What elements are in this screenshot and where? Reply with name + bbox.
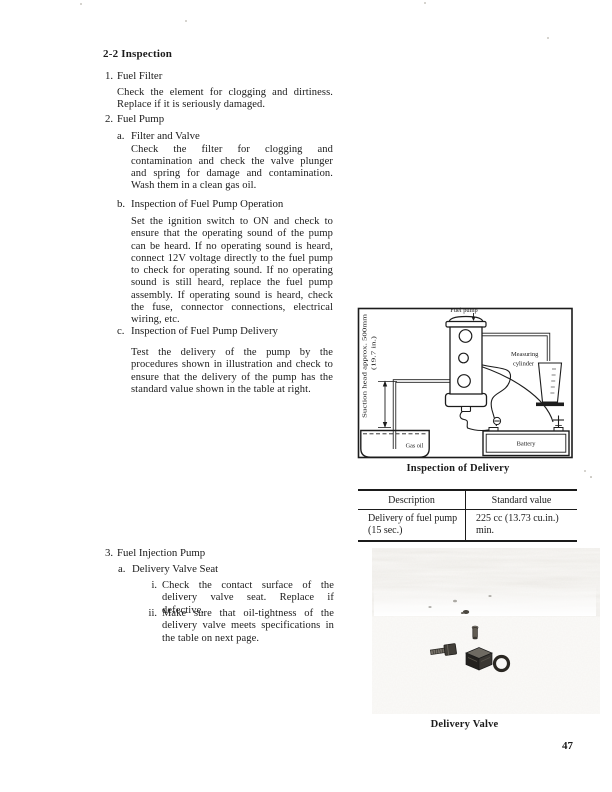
scan-speck [80,3,82,5]
item-marker: 3. [105,547,117,559]
table-header-row: Description Standard value [358,491,577,510]
item-2-fuel-pump: 2. Fuel Pump [105,113,164,125]
item-2a-filter-and-valve: a. Filter and Valve [117,130,200,142]
item-2c-body: Test the delivery of the pump by the pro… [131,347,333,396]
valve-stem-part [472,626,478,639]
diagram-caption: Inspection of Delivery [352,463,564,474]
item-2b-body: Set the ignition switch to ON and check … [131,216,333,327]
photo-speck [488,595,491,597]
item-3a-ii: ii. Make sure that oil-tightness of the … [144,608,334,645]
pump-port-middle [459,353,469,363]
item-title: Inspection of Fuel Pump Delivery [131,325,278,337]
item-2b-pump-operation: b. Inspection of Fuel Pump Operation [117,198,283,210]
battery-minus-icon [493,417,500,424]
value-line1: 225 cc (13.73 cu.in.) [476,513,573,525]
table-cell-standard-value: 225 cc (13.73 cu.in.) min. [466,510,577,541]
measuring-cylinder-label-line1: Measuring [511,351,539,358]
measuring-cylinder-label-line2: cylinder [513,361,535,368]
photo-speck [428,606,431,608]
item-title: Filter and Valve [131,130,200,142]
pump-port-bottom [458,375,471,388]
item-1-fuel-filter: 1. Fuel Filter [105,70,162,82]
item-1-body: Check the element for clogging and dirti… [117,87,333,112]
item-marker: a. [118,563,132,575]
item-title: Fuel Pump [117,113,164,125]
item-marker: 1. [105,70,117,82]
value-line2: min. [476,525,573,537]
item-3a-ii-body: Make sure that oil-tightness of the deli… [162,608,334,645]
item-3a-delivery-valve-seat: a. Delivery Valve Seat [118,563,218,575]
item-2c-pump-delivery: c. Inspection of Fuel Pump Delivery [117,325,278,337]
battery-label: Battery [517,441,537,448]
item-marker: c. [117,325,131,337]
item-marker: a. [117,130,131,142]
manual-page: 2-2 Inspection 1. Fuel Filter Check the … [0,0,612,792]
suction-head-label-line2: (19.7 in.) [371,336,378,370]
table-row: Delivery of fuel pump (15 sec.) 225 cc (… [358,510,577,541]
scan-speck [547,37,549,39]
item-title: Delivery Valve Seat [132,563,218,575]
gas-oil-label: Gas oil [406,443,424,450]
scan-speck [584,470,586,472]
scan-speck [424,2,426,4]
item-marker: 2. [105,113,117,125]
item-marker: ii. [144,608,157,645]
pump-port-top [459,330,472,343]
table-header-description: Description [358,491,466,509]
item-marker: b. [117,198,131,210]
scan-speck [590,476,592,478]
page-number: 47 [562,740,573,752]
section-heading: 2-2 Inspection [103,48,172,60]
item-title: Inspection of Fuel Pump Operation [131,198,283,210]
photo-fade [374,584,596,616]
suction-head-label-line1: Suction head approx. 500mm [362,314,369,418]
standard-value-table: Description Standard value Delivery of f… [358,489,577,542]
table-header-standard-value: Standard value [466,491,577,509]
item-title: Fuel Injection Pump [117,547,205,559]
photo-caption: Delivery Valve [372,719,557,730]
fuel-pump-label: Fuel pump [450,307,478,314]
delivery-valve-photo [372,548,600,714]
photo-speck [453,600,457,603]
table-cell-description: Delivery of fuel pump (15 sec.) [358,510,466,541]
fuel-pump-drawing [446,317,487,412]
scan-speck [185,20,187,22]
item-title: Fuel Filter [117,70,162,82]
description-line2: (15 sec.) [368,525,461,537]
delivery-inspection-diagram: Fuel pump Measuring cylinder Suction hea… [350,302,582,464]
item-2a-body: Check the filter for clogging and contam… [131,144,333,193]
item-3-fuel-injection-pump: 3. Fuel Injection Pump [105,547,205,559]
description-line1: Delivery of fuel pump [368,513,461,525]
